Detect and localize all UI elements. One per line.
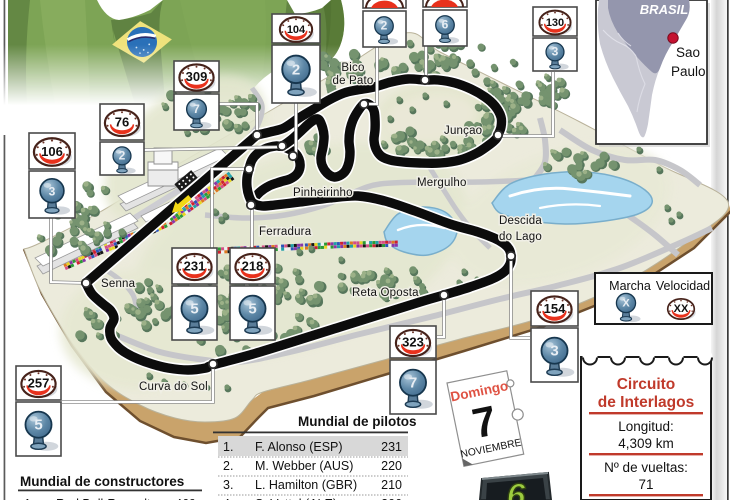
svg-text:3.: 3. bbox=[223, 478, 233, 492]
svg-text:2: 2 bbox=[119, 148, 126, 162]
svg-text:220: 220 bbox=[381, 459, 402, 473]
svg-text:154: 154 bbox=[544, 301, 566, 316]
svg-text:231: 231 bbox=[184, 259, 206, 274]
svg-text:Mergulho: Mergulho bbox=[417, 177, 467, 189]
svg-text:106: 106 bbox=[41, 144, 63, 159]
svg-text:Reta Oposta: Reta Oposta bbox=[352, 287, 419, 299]
svg-text:1.: 1. bbox=[223, 440, 233, 454]
svg-text:2.: 2. bbox=[223, 459, 233, 473]
svg-text:XX: XX bbox=[674, 303, 689, 315]
svg-text:L. Hamilton (GBR): L. Hamilton (GBR) bbox=[255, 478, 357, 492]
svg-text:Bico: Bico bbox=[341, 62, 364, 74]
svg-text:Curva do Sol: Curva do Sol bbox=[139, 381, 208, 393]
svg-text:F. Alonso (ESP): F. Alonso (ESP) bbox=[255, 440, 343, 454]
svg-text:210: 210 bbox=[381, 478, 402, 492]
svg-text:Mundial de constructores: Mundial de constructores bbox=[20, 474, 184, 489]
svg-text:Sao: Sao bbox=[676, 45, 700, 60]
svg-text:Junçao: Junçao bbox=[444, 125, 482, 137]
svg-text:76: 76 bbox=[115, 115, 129, 130]
svg-text:X: X bbox=[622, 298, 630, 310]
svg-text:7: 7 bbox=[193, 102, 200, 116]
svg-text:231: 231 bbox=[381, 440, 402, 454]
svg-text:5: 5 bbox=[190, 301, 198, 318]
svg-text:Nº de vueltas:: Nº de vueltas: bbox=[604, 460, 688, 475]
svg-text:257: 257 bbox=[28, 376, 50, 391]
svg-text:Senna: Senna bbox=[101, 278, 136, 290]
svg-text:do Lago: do Lago bbox=[499, 231, 542, 243]
svg-text:5: 5 bbox=[34, 417, 42, 434]
svg-text:4,309 km: 4,309 km bbox=[618, 436, 674, 451]
svg-text:218: 218 bbox=[242, 259, 264, 274]
svg-text:2: 2 bbox=[381, 19, 388, 33]
svg-text:3: 3 bbox=[49, 184, 56, 198]
svg-text:Paulo: Paulo bbox=[671, 64, 706, 79]
svg-text:Mundial de pilotos: Mundial de pilotos bbox=[298, 414, 417, 429]
svg-text:6: 6 bbox=[507, 477, 527, 500]
svg-text:Longitud:: Longitud: bbox=[618, 419, 674, 434]
svg-text:de Pato: de Pato bbox=[332, 75, 373, 87]
svg-text:Marcha: Marcha bbox=[609, 279, 651, 293]
svg-text:Ferradura: Ferradura bbox=[259, 226, 312, 238]
svg-text:130: 130 bbox=[546, 17, 564, 29]
svg-text:2: 2 bbox=[292, 62, 300, 79]
svg-text:de Interlagos: de Interlagos bbox=[598, 394, 694, 411]
svg-text:5: 5 bbox=[248, 301, 256, 318]
svg-text:BRASIL: BRASIL bbox=[640, 2, 688, 17]
svg-text:M. Webber (AUS): M. Webber (AUS) bbox=[255, 459, 353, 473]
svg-text:3: 3 bbox=[550, 343, 558, 360]
svg-text:Pinheirinho: Pinheirinho bbox=[293, 187, 353, 199]
svg-text:3: 3 bbox=[552, 44, 559, 58]
svg-text:71: 71 bbox=[638, 477, 653, 492]
svg-text:104: 104 bbox=[287, 24, 306, 36]
svg-text:Circuito: Circuito bbox=[617, 376, 676, 393]
svg-text:309: 309 bbox=[186, 69, 208, 84]
svg-text:Velocidad: Velocidad bbox=[656, 279, 710, 293]
svg-text:323: 323 bbox=[402, 335, 424, 350]
svg-text:7: 7 bbox=[409, 375, 417, 392]
svg-text:Descida: Descida bbox=[499, 215, 542, 227]
svg-text:6: 6 bbox=[442, 18, 449, 32]
